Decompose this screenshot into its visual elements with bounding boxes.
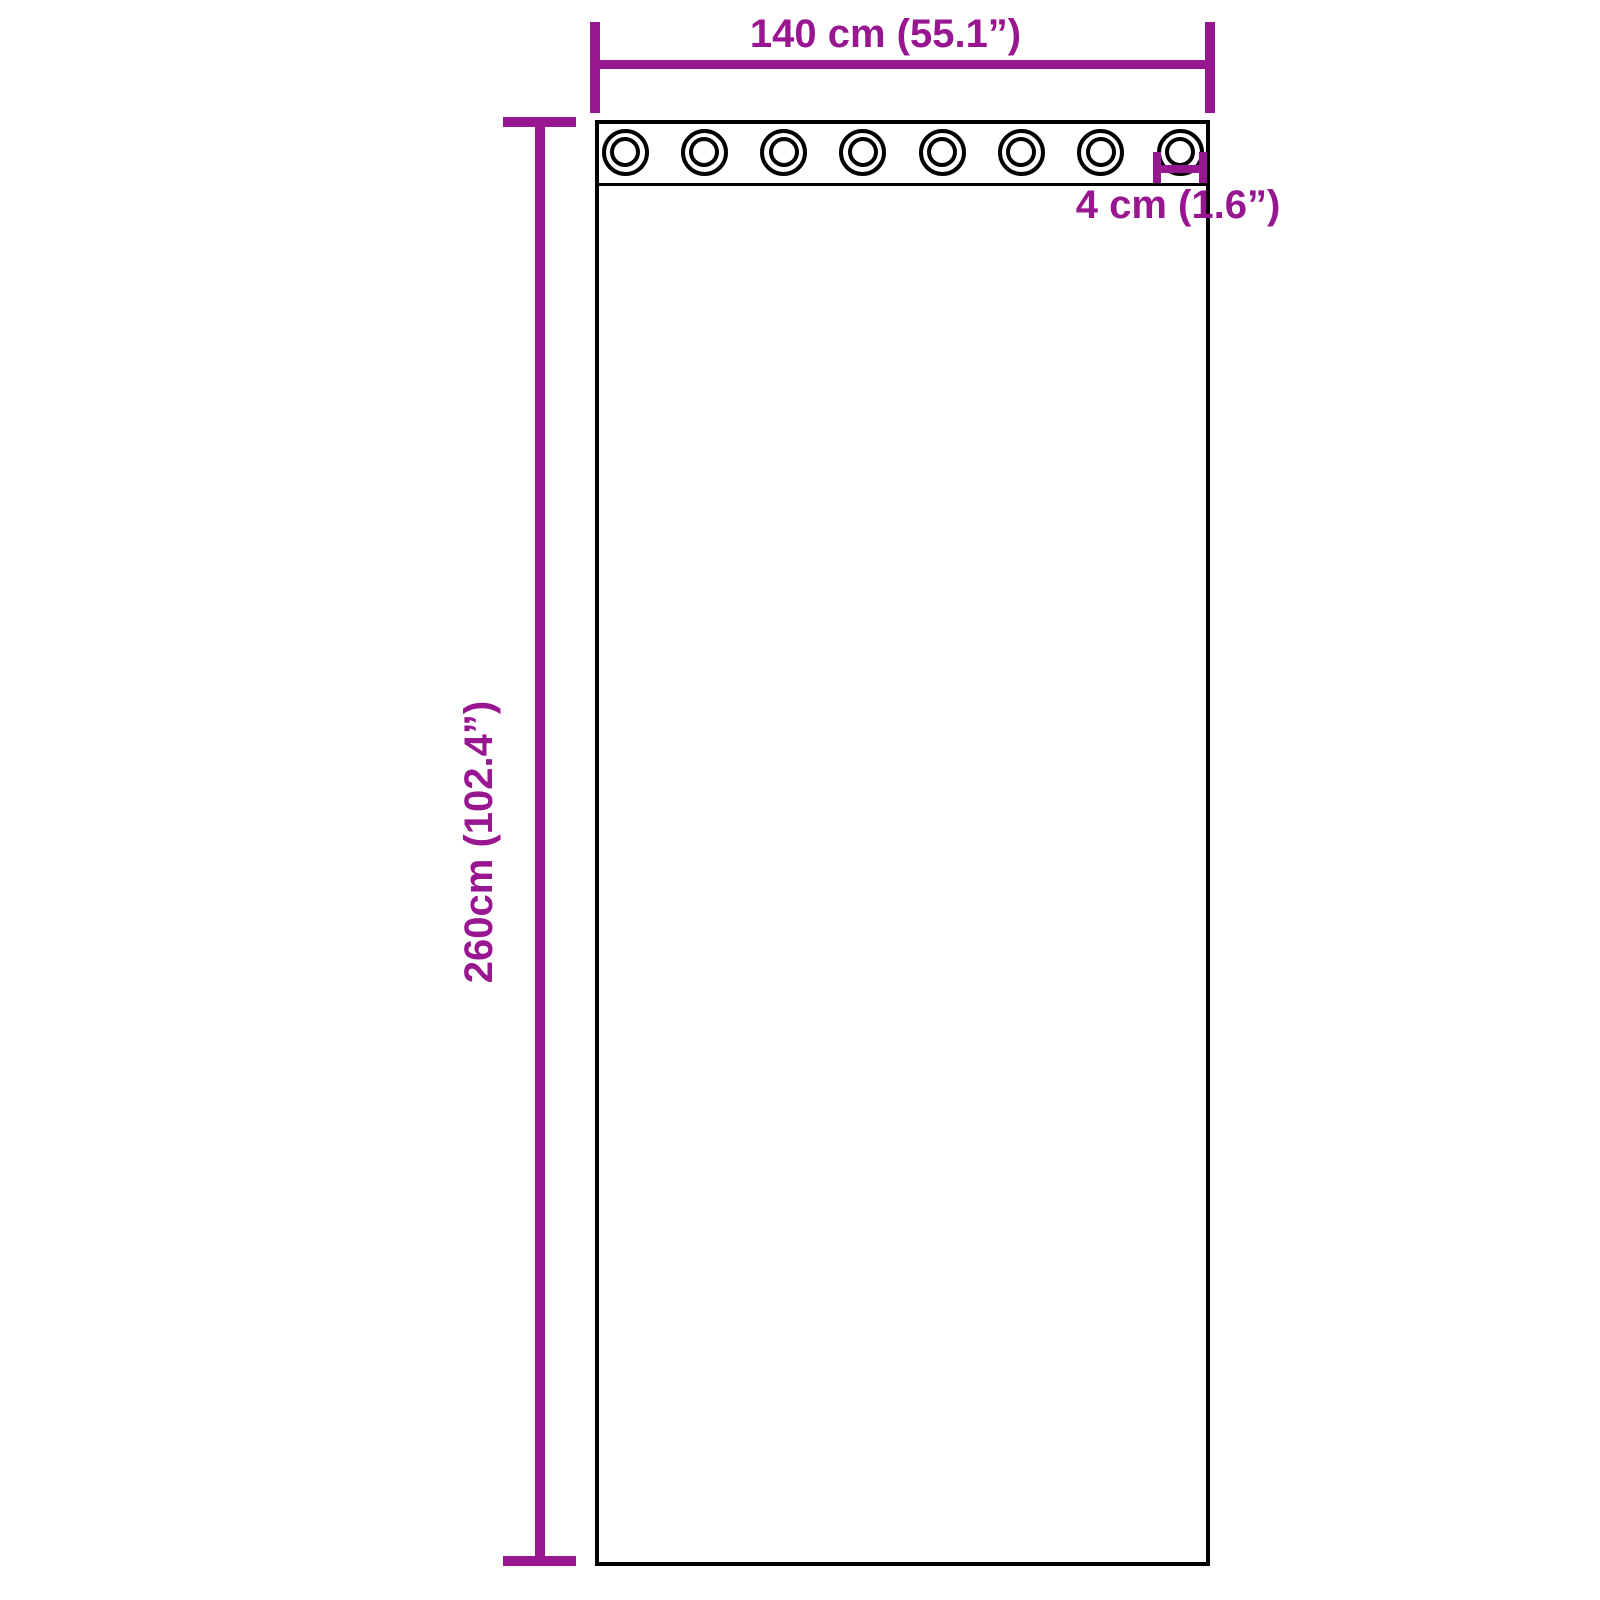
grommet xyxy=(602,129,649,176)
grommet-diameter-label: 4 cm (1.6”) xyxy=(1038,182,1318,232)
height-dimension-cap-bottom xyxy=(503,1556,576,1566)
grommet xyxy=(839,129,886,176)
grommet xyxy=(760,129,807,176)
height-dimension-line xyxy=(535,117,545,1566)
width-dimension-cap-right xyxy=(1205,22,1215,113)
product-dimension-diagram: 140 cm (55.1”) 260cm (102.4”) 4 cm (1.6”… xyxy=(0,0,1600,1600)
grommet xyxy=(1077,129,1124,176)
width-dimension-line xyxy=(590,60,1215,69)
grommet xyxy=(919,129,966,176)
width-dimension-label: 140 cm (55.1”) xyxy=(578,9,1193,59)
grommet-diameter-cap-right xyxy=(1199,152,1207,183)
grommet-inner-ring xyxy=(1006,137,1036,167)
grommet-inner-ring xyxy=(769,137,799,167)
grommet-inner-ring xyxy=(1165,137,1195,167)
grommet-inner-ring xyxy=(1086,137,1116,167)
grommet-inner-ring xyxy=(610,137,640,167)
curtain-panel-outline xyxy=(595,120,1210,1566)
grommet-inner-ring xyxy=(927,137,957,167)
height-dimension-cap-top xyxy=(503,117,576,127)
grommet-diameter-cap-left xyxy=(1153,152,1161,183)
grommet-inner-ring xyxy=(848,137,878,167)
grommet-inner-ring xyxy=(689,137,719,167)
height-dimension-label: 260cm (102.4”) xyxy=(454,542,504,1142)
grommet xyxy=(681,129,728,176)
grommet xyxy=(998,129,1045,176)
